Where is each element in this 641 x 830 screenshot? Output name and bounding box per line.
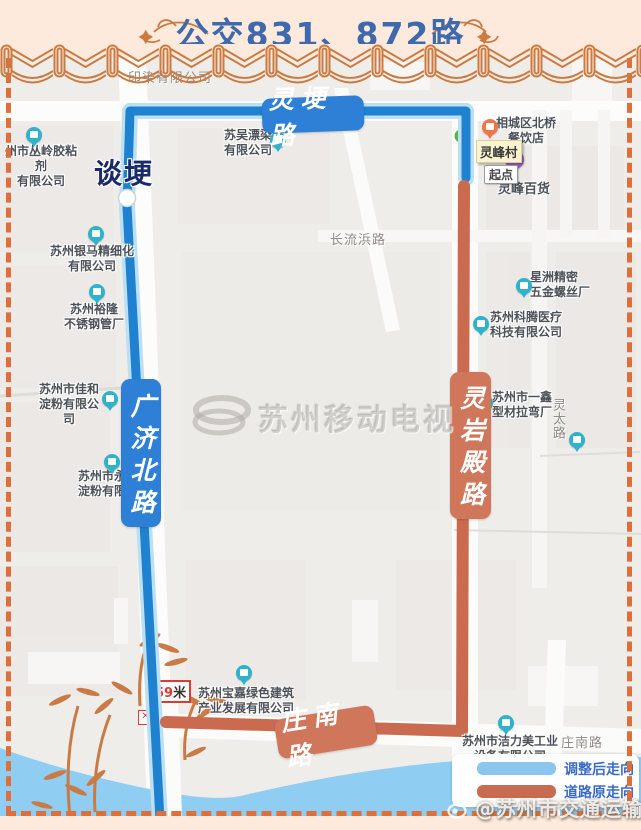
building-poi-icon: [102, 391, 118, 407]
credit-text: @苏州市交通运输局: [475, 793, 641, 822]
building-poi-icon: [104, 454, 120, 470]
weibo-icon: [446, 796, 472, 820]
building-poi-icon: [89, 284, 105, 300]
tv-watermark-text: 苏州移动电视: [258, 395, 456, 439]
restaurant-poi-icon: [482, 119, 498, 135]
distance-badge: 59米: [150, 680, 191, 703]
building-poi-icon: [236, 665, 252, 681]
restroom-poi-icon: [569, 432, 585, 448]
bus-route-map-infographic: 59米 州市丛岭胶粘剂有限公司 苏吴漂染有限公司 苏州银马精细化有限公司 苏州裕…: [0, 0, 641, 830]
road-closed-icon: [138, 710, 153, 725]
building-poi-icon: [516, 278, 532, 294]
building-poi-icon: [88, 226, 104, 242]
road-text-zhuangnan: 庄南路: [561, 732, 603, 751]
poi-keteng: 苏州科腾医疗科技有限公司: [490, 310, 574, 340]
poi-yulong: 苏州裕隆不锈钢管厂: [58, 302, 130, 332]
weibo-credit: @苏州市交通运输局: [446, 793, 641, 822]
road-text-lingtai: 灵太路: [548, 398, 567, 440]
poi-congling: 州市丛岭胶粘剂有限公司: [2, 144, 80, 189]
legend-adjusted-swatch: [477, 762, 556, 775]
road-plate-lingyandian: 灵岩殿路: [450, 372, 491, 519]
start-point-badge: 起点: [484, 165, 518, 184]
stop-label-tangeng: 谈埂: [94, 152, 154, 192]
building-poi-icon: [26, 127, 42, 143]
road-text-changliubang: 长流浜路: [330, 229, 386, 248]
village-callout-lingfengcun: 灵峰村: [476, 140, 522, 163]
road-plate-zhuangnan: 庄南路: [273, 704, 378, 759]
poi-jiahe: 苏州市佳和淀粉有限公司: [36, 382, 102, 427]
lace-border: [0, 44, 641, 88]
road-plate-linggeng: 灵埂路: [261, 95, 364, 134]
poi-yinma: 苏州银马精细化有限公司: [50, 244, 134, 274]
legend-adjusted-label: 调整后走向: [564, 759, 636, 779]
tv-watermark: 苏州移动电视: [192, 390, 456, 444]
road-plate-guangjibei: 广济北路: [121, 379, 161, 527]
building-poi-icon: [498, 715, 514, 731]
building-poi-icon: [473, 316, 489, 332]
suzhou-mobile-tv-logo-icon: [192, 390, 252, 444]
poi-xingzhou: 星洲精密五金螺丝厂: [530, 270, 602, 300]
